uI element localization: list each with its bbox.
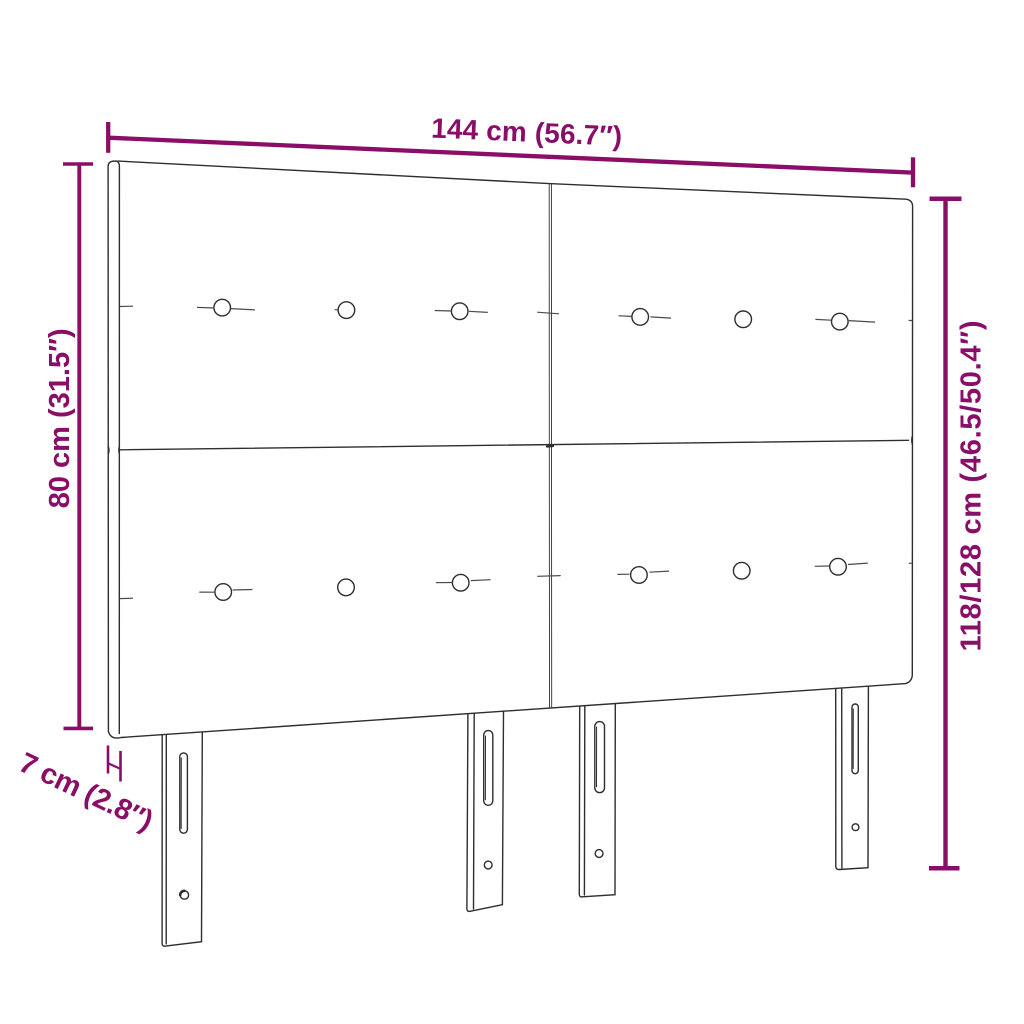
svg-text:80 cm (31.5″): 80 cm (31.5″) xyxy=(44,328,76,508)
svg-text:118/128 cm (46.5/50.4″): 118/128 cm (46.5/50.4″) xyxy=(955,321,987,652)
